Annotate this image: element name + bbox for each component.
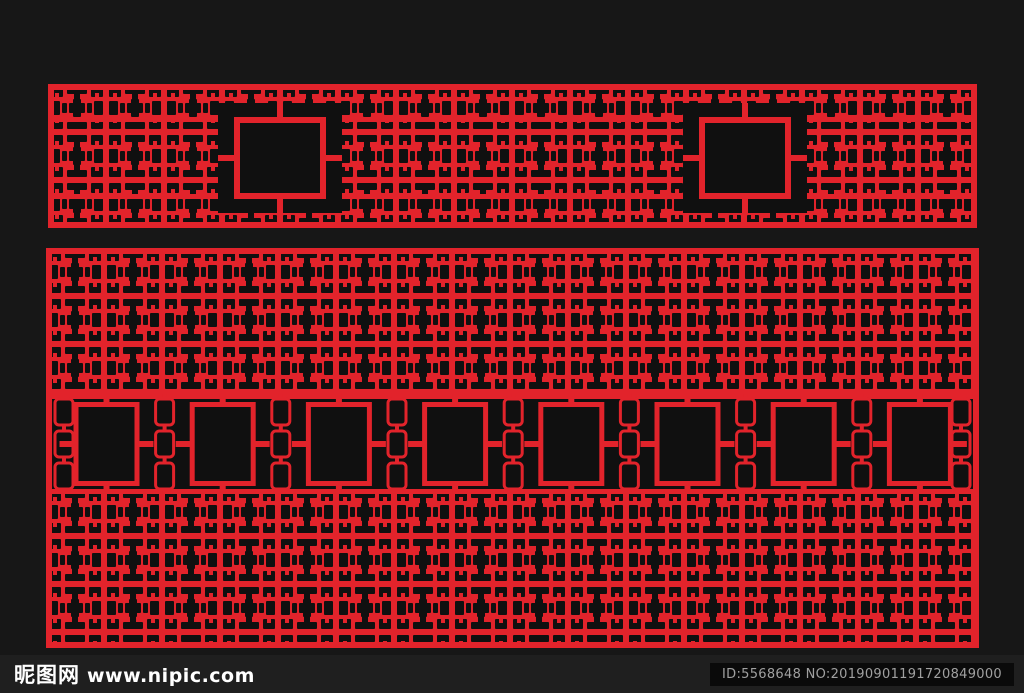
lattice-shape	[388, 463, 406, 489]
lattice-shape	[776, 407, 832, 481]
lattice-shape	[156, 399, 174, 425]
lattice-shape	[835, 441, 851, 447]
lattice-shape	[504, 431, 522, 457]
lattice-shape	[543, 407, 599, 481]
lattice-panel-top	[48, 84, 977, 228]
lattice-shape	[737, 463, 755, 489]
lattice-shape	[620, 399, 638, 425]
lattice-shape	[156, 463, 174, 489]
lattice-shape	[952, 399, 970, 425]
lattice-shape	[757, 441, 773, 447]
lattice-shape	[853, 399, 871, 425]
lattice-shape	[408, 441, 424, 447]
lattice-shape	[427, 407, 483, 481]
lattice-shape	[486, 441, 502, 447]
lattice-shape	[388, 399, 406, 425]
lattice-shape	[55, 399, 73, 425]
lattice-shape	[176, 441, 192, 447]
lattice-shape	[951, 441, 967, 447]
lattice-shape	[254, 441, 270, 447]
lattice-shape	[683, 155, 701, 161]
lattice-shape	[324, 155, 342, 161]
site-logo: 昵图网 www.nipic.com	[14, 659, 255, 689]
lattice-shape	[952, 463, 970, 489]
lattice-shape	[195, 407, 251, 481]
lattice-shape	[156, 431, 174, 457]
lattice-shape	[789, 155, 807, 161]
lattice-shape	[79, 407, 135, 481]
lattice-shape	[853, 463, 871, 489]
watermark-bar: 昵图网 www.nipic.com ID:5568648 NO:20190901…	[0, 655, 1024, 693]
panel-divider	[510, 90, 515, 222]
lattice-shape	[272, 399, 290, 425]
lattice-shape	[277, 103, 283, 119]
lattice-shape	[138, 441, 154, 447]
lattice-shape	[737, 431, 755, 457]
lattice-shape	[240, 123, 320, 193]
lattice-panel-bottom	[46, 248, 979, 648]
lattice-shape	[892, 407, 948, 481]
site-url: www.nipic.com	[87, 665, 255, 687]
site-name: 昵图网	[14, 659, 80, 689]
lattice-shape	[620, 431, 638, 457]
window-openings-bottom	[55, 394, 970, 494]
lattice-shape	[873, 441, 889, 447]
lattice-shape	[311, 407, 367, 481]
lattice-shape	[504, 399, 522, 425]
lattice-shape	[641, 441, 657, 447]
page-background: 昵图网 www.nipic.com ID:5568648 NO:20190901…	[0, 0, 1024, 693]
lattice-shape	[504, 463, 522, 489]
lattice-shape	[370, 441, 386, 447]
lattice-shape	[719, 441, 735, 447]
lattice-shape	[218, 155, 236, 161]
lattice-shape	[742, 103, 748, 119]
lattice-shape	[660, 407, 716, 481]
lattice-shape	[272, 463, 290, 489]
lattice-shape	[602, 441, 618, 447]
lattice-shape	[737, 399, 755, 425]
lattice-shape	[55, 463, 73, 489]
lattice-shape	[620, 463, 638, 489]
image-id-badge: ID:5568648 NO:20190901191720849000	[710, 663, 1014, 686]
lattice-shape	[388, 431, 406, 457]
lattice-shape	[853, 431, 871, 457]
lattice-shape	[524, 441, 540, 447]
lattice-shape	[292, 441, 308, 447]
lattice-shape	[60, 441, 76, 447]
lattice-shape	[705, 123, 785, 193]
lattice-shape	[272, 431, 290, 457]
